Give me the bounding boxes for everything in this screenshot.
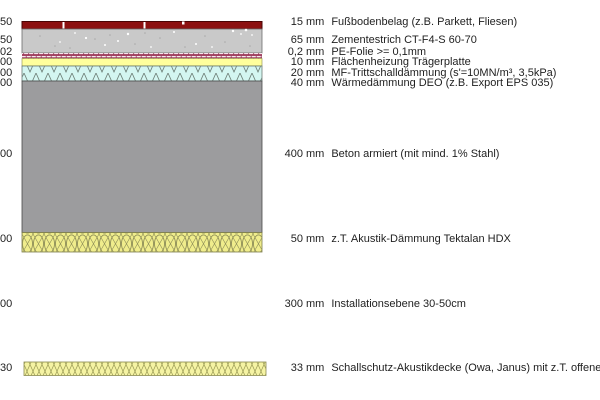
- dim-fragment-flooring: 50: [0, 17, 12, 28]
- layer-unit: mm: [306, 234, 324, 245]
- layer-label-installation-gap: 300 mm Installationsebene 30-50cm: [283, 299, 466, 310]
- layer-thickness: 50: [283, 234, 303, 245]
- layer-description: Installationsebene 30-50cm: [331, 299, 466, 310]
- flooring-joint-notch: [182, 22, 185, 25]
- layer-label-concrete: 400 mm Beton armiert (mit mind. 1% Stahl…: [283, 149, 499, 160]
- dim-fragment-woodwool: 00: [0, 234, 12, 245]
- layer-unit: mm: [306, 363, 324, 374]
- layer-label-screed: 65 mm Zementestrich CT-F4-S 60-70: [283, 35, 477, 46]
- layer-rect-screed: [22, 29, 262, 53]
- layer-description: Schallschutz-Akustikdecke (Owa, Janus) m…: [331, 363, 600, 374]
- layer-rect-flooring: [22, 22, 262, 30]
- layer-thickness: 65: [283, 35, 303, 46]
- flooring-joint: [63, 22, 65, 29]
- dim-fragment-screed: 50: [0, 35, 12, 46]
- dim-fragment-concrete: 00: [0, 149, 12, 160]
- layer-thickness: 400: [283, 149, 303, 160]
- layer-description: Zementestrich CT-F4-S 60-70: [331, 35, 477, 46]
- layer-thickness: 33: [283, 363, 303, 374]
- layer-thickness: 15: [283, 17, 303, 28]
- woodwool-chain-pattern: [22, 233, 262, 253]
- layer-label-flooring: 15 mm Fußbodenbelag (z.B. Parkett, Flies…: [283, 17, 517, 28]
- layer-unit: mm: [306, 35, 324, 46]
- layer-unit: mm: [306, 17, 324, 28]
- layer-thickness: 40: [283, 78, 303, 89]
- layer-unit: mm: [306, 78, 324, 89]
- layer-label-thermal-insulation: 40 mm Wärmedämmung DEO (z.B. Export EPS …: [283, 78, 553, 89]
- floor-construction-diagram: 50 50 02 00 00 00 00 00 00 30 15 mm Fußb…: [0, 0, 600, 400]
- layer-description: Beton armiert (mit mind. 1% Stahl): [331, 149, 499, 160]
- layer-unit: mm: [306, 149, 324, 160]
- dim-fragment-impact-insul: 00: [0, 68, 12, 79]
- acoustic-ceiling-hatch: [24, 362, 266, 376]
- dim-fragment-carrier-plate: 00: [0, 57, 12, 68]
- layer-description: z.T. Akustik-Dämmung Tektalan HDX: [331, 234, 511, 245]
- layer-thickness: 300: [283, 299, 303, 310]
- dim-fragment-install-gap: 00: [0, 299, 12, 310]
- layer-unit: mm: [306, 299, 324, 310]
- layer-description: Wärmedämmung DEO (z.B. Export EPS 035): [331, 78, 553, 89]
- thermal-insulation-zigzag: [23, 66, 262, 81]
- layer-label-woodwool: 50 mm z.T. Akustik-Dämmung Tektalan HDX: [283, 234, 511, 245]
- dim-fragment-thermal-insul: 00: [0, 78, 12, 89]
- layer-rect-impact-insulation: [22, 59, 262, 67]
- flooring-joint: [144, 22, 146, 29]
- carrier-plate-hatch: [22, 53, 262, 59]
- layer-rect-concrete: [22, 81, 262, 233]
- dim-fragment-ceiling: 30: [0, 363, 12, 374]
- layer-description: Fußbodenbelag (z.B. Parkett, Fliesen): [331, 17, 517, 28]
- layer-label-acoustic-ceiling: 33 mm Schallschutz-Akustikdecke (Owa, Ja…: [283, 363, 600, 374]
